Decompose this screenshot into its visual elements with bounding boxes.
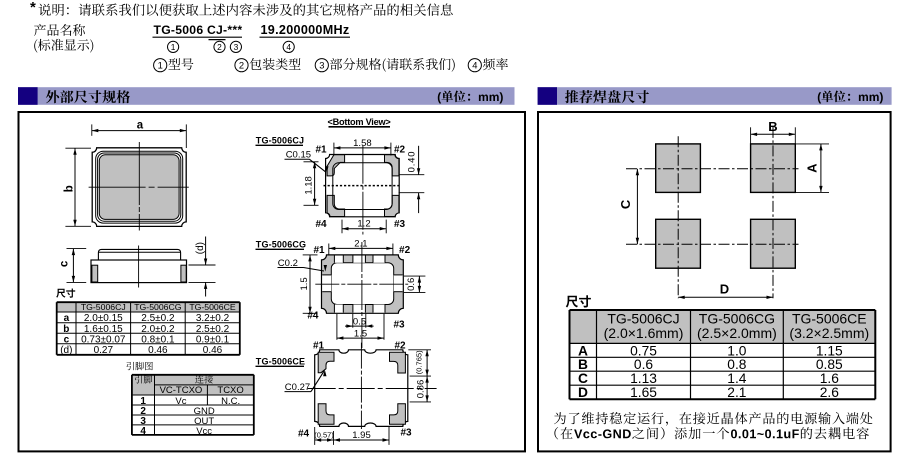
svg-text:(d): (d) <box>195 242 206 254</box>
svg-text:c: c <box>58 260 70 267</box>
svg-text:B: B <box>578 357 588 372</box>
svg-text:TG-5006CG: TG-5006CG <box>134 302 182 312</box>
svg-text:1: 1 <box>158 60 163 71</box>
svg-text:#2: #2 <box>394 145 406 156</box>
svg-text:0.85: 0.85 <box>816 357 843 372</box>
svg-text:TG-5006CE: TG-5006CE <box>256 357 305 367</box>
svg-text:(3.2×2.5mm): (3.2×2.5mm) <box>789 325 869 341</box>
svg-text:2.5±0.2: 2.5±0.2 <box>196 324 230 335</box>
svg-text:C: C <box>578 371 588 386</box>
svg-text:1.6±0.15: 1.6±0.15 <box>84 324 123 335</box>
svg-text:0.46: 0.46 <box>203 345 223 356</box>
svg-text:b: b <box>63 324 69 335</box>
svg-text:0.8: 0.8 <box>727 357 747 372</box>
svg-text:#2: #2 <box>399 245 411 256</box>
svg-text:N.C.: N.C. <box>221 396 240 407</box>
svg-text:1.5: 1.5 <box>354 328 367 339</box>
svg-text:#3: #3 <box>400 428 412 439</box>
svg-text:#1: #1 <box>315 145 327 156</box>
svg-text:1.65: 1.65 <box>630 385 657 400</box>
svg-text:1.5: 1.5 <box>299 277 310 290</box>
svg-text:2.0±0.15: 2.0±0.15 <box>84 313 123 324</box>
svg-text:0.8±0.1: 0.8±0.1 <box>141 334 175 345</box>
svg-text:0.75: 0.75 <box>630 343 657 358</box>
svg-text:*: * <box>30 0 36 16</box>
svg-text:TG-5006CJ: TG-5006CJ <box>256 136 304 146</box>
svg-text:1.18: 1.18 <box>304 176 315 195</box>
svg-text:4: 4 <box>286 42 291 52</box>
svg-text:#4: #4 <box>298 429 310 440</box>
svg-text:0.27: 0.27 <box>94 345 114 356</box>
svg-text:2.6: 2.6 <box>820 385 840 400</box>
svg-text:TG-5006 CJ-***: TG-5006 CJ-*** <box>154 23 243 37</box>
svg-text:0.9±0.1: 0.9±0.1 <box>196 334 230 345</box>
svg-text:B: B <box>768 119 777 134</box>
svg-text:2: 2 <box>239 60 244 71</box>
svg-text:3: 3 <box>319 60 324 71</box>
svg-text:#4: #4 <box>307 310 319 321</box>
svg-text:a: a <box>64 313 70 324</box>
svg-text:0.40: 0.40 <box>406 151 417 173</box>
svg-text:VC-TCXO: VC-TCXO <box>160 385 203 396</box>
svg-text:TG-5006CG: TG-5006CG <box>256 240 306 250</box>
svg-text:2.1: 2.1 <box>354 238 367 249</box>
svg-text:0.86: 0.86 <box>415 380 426 399</box>
svg-text:1.13: 1.13 <box>630 371 657 386</box>
svg-text:1: 1 <box>171 42 176 52</box>
svg-text:TG-5006CJ: TG-5006CJ <box>81 302 126 312</box>
svg-text:TG-5006CE: TG-5006CE <box>189 302 236 312</box>
svg-text:0.6: 0.6 <box>634 357 654 372</box>
svg-text:19.200000MHz: 19.200000MHz <box>261 23 350 37</box>
svg-text:4: 4 <box>140 426 146 437</box>
svg-text:1.58: 1.58 <box>353 138 372 149</box>
svg-text:1.2: 1.2 <box>357 219 370 230</box>
svg-text:2.0±0.2: 2.0±0.2 <box>141 324 175 335</box>
svg-text:(2.5×2.0mm): (2.5×2.0mm) <box>697 325 777 341</box>
svg-text:D: D <box>720 282 729 297</box>
svg-text:1.15: 1.15 <box>816 343 843 358</box>
svg-text:2.1: 2.1 <box>727 385 746 400</box>
svg-text:0.5: 0.5 <box>353 317 366 328</box>
svg-text:1.4: 1.4 <box>727 371 747 386</box>
svg-text:Vc: Vc <box>175 396 186 407</box>
svg-text:b: b <box>63 185 75 192</box>
svg-text:(2.0×1.6mm): (2.0×1.6mm) <box>604 325 684 341</box>
svg-text:0.73±0.07: 0.73±0.07 <box>81 334 126 345</box>
svg-text:c: c <box>64 334 70 345</box>
svg-text:1.95: 1.95 <box>352 430 371 441</box>
svg-text:1.6: 1.6 <box>820 371 840 386</box>
svg-text:1.0: 1.0 <box>727 343 747 358</box>
svg-text:4: 4 <box>472 60 477 71</box>
svg-text:(0.57): (0.57) <box>314 431 334 440</box>
svg-text:(d): (d) <box>60 345 72 356</box>
svg-text:C: C <box>618 199 633 209</box>
svg-text:3: 3 <box>234 42 239 52</box>
svg-text:A: A <box>804 163 819 173</box>
svg-text:A: A <box>578 343 588 358</box>
svg-text:0.6: 0.6 <box>406 278 417 291</box>
svg-text:3.2±0.2: 3.2±0.2 <box>196 313 230 324</box>
svg-text:2.5±0.2: 2.5±0.2 <box>141 313 175 324</box>
svg-text:D: D <box>578 385 588 400</box>
svg-text:Vcc: Vcc <box>196 426 212 437</box>
svg-text:TCXO: TCXO <box>217 385 243 396</box>
svg-text:#3: #3 <box>393 319 405 330</box>
svg-text:2: 2 <box>217 42 222 52</box>
svg-text:a: a <box>137 119 144 131</box>
svg-text:<Bottom View>: <Bottom View> <box>328 117 391 127</box>
svg-text:#4: #4 <box>315 219 327 230</box>
svg-text:#1: #1 <box>313 340 325 351</box>
svg-text:(0.765): (0.765) <box>414 350 423 374</box>
svg-text:#2: #2 <box>394 340 406 351</box>
svg-text:#3: #3 <box>394 219 406 230</box>
svg-text:0.46: 0.46 <box>148 345 168 356</box>
